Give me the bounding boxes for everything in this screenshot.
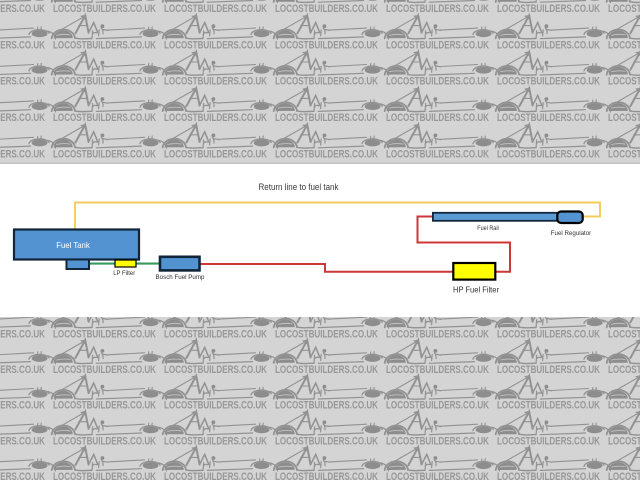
svg-text:HP Fuel Filter: HP Fuel Filter [453, 285, 499, 294]
svg-text:Fuel Tank: Fuel Tank [56, 240, 90, 250]
svg-text:LP Filter: LP Filter [113, 270, 136, 277]
svg-text:Return line to fuel tank: Return line to fuel tank [259, 182, 339, 192]
svg-text:Fuel Regulator: Fuel Regulator [551, 230, 592, 237]
svg-text:Bosch Fuel Pump: Bosch Fuel Pump [156, 274, 205, 281]
svg-text:Fuel Rail: Fuel Rail [477, 225, 499, 232]
